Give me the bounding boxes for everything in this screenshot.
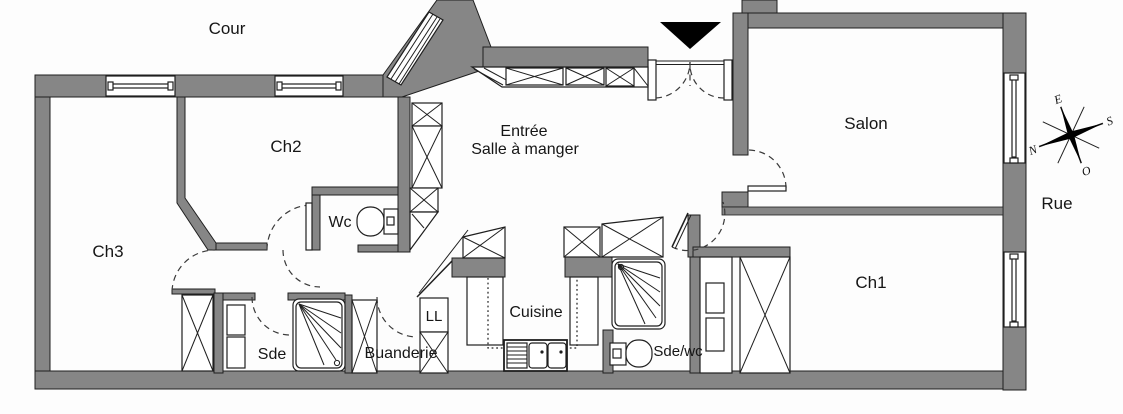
counter-left (467, 277, 503, 345)
door-arc-sde (252, 297, 290, 335)
sink-basin (548, 343, 566, 368)
window-ch2 (275, 76, 343, 96)
compass-label-o: O (1080, 163, 1093, 179)
wall-right (1003, 13, 1026, 390)
window-glass (1012, 79, 1016, 157)
entrance-arrow-icon (660, 22, 721, 49)
wall-ch3-ch2-divider (177, 97, 216, 250)
label-ch1: Ch1 (855, 273, 886, 292)
window-cap (1010, 254, 1018, 259)
compass-label-s: S (1104, 113, 1114, 128)
window-glass (112, 84, 169, 88)
wall-salon-step (722, 192, 748, 207)
label-buanderie: Buanderie (365, 345, 438, 362)
wardrobe-buanderie (352, 300, 377, 373)
faucet-dot (559, 350, 562, 353)
wardrobe-ch3 (182, 295, 213, 371)
label-sde-wc: Sde/wc (653, 343, 703, 360)
shower-sdewc (612, 259, 665, 329)
door-swing-arc (690, 62, 724, 98)
closet-entree-top (472, 67, 648, 87)
label-cuisine: Cuisine (509, 304, 562, 321)
wall-hall-north (216, 243, 267, 250)
window-cap (168, 82, 173, 90)
label-ch3: Ch3 (92, 242, 123, 261)
wall-top-ch3-ch2 (35, 75, 400, 97)
window-ch3 (106, 76, 175, 96)
wall-left (35, 75, 50, 389)
window-salon (1004, 73, 1025, 163)
door-leaf-left (648, 60, 656, 100)
floor-plan-page: E S N O Cour Ch2 Ch3 Wc Entrée Salle à m… (0, 0, 1123, 414)
entrance-door (648, 22, 732, 100)
window-glass (1012, 258, 1016, 321)
label-ch2: Ch2 (270, 137, 301, 156)
cabinet-shelf (706, 318, 724, 351)
compass-label-e: E (1051, 91, 1064, 107)
door-swing-arc (656, 62, 690, 98)
kitchen-sink (504, 340, 567, 371)
toilet-sdewc (610, 340, 652, 367)
toilet-bowl (357, 207, 384, 236)
wardrobe-ch1 (740, 257, 790, 373)
wall-ch2-right-column (398, 97, 410, 252)
cabinet-body (700, 257, 732, 373)
window-cap (1010, 158, 1018, 163)
wall-bottom (35, 371, 1026, 389)
cabinet-shelf (706, 283, 724, 313)
label-salle-a-manger: Salle à manger (471, 141, 579, 158)
closet-column-ch2 (410, 103, 442, 250)
wall-top-entree (483, 47, 648, 67)
label-salon: Salon (844, 114, 887, 133)
door-leaf-ch2 (306, 203, 312, 250)
kitchen-counters (467, 277, 598, 371)
cabinet-ch1 (700, 257, 732, 373)
label-entree: Entrée (500, 123, 547, 140)
wall-cuisine-left-band (452, 258, 505, 277)
floor-plan: E S N O Cour Ch2 Ch3 Wc Entrée Salle à m… (0, 0, 1123, 414)
faucet-dot (540, 350, 543, 353)
door-arc-wc (283, 250, 320, 287)
wall-salon-left (733, 13, 748, 155)
label-ll: LL (426, 308, 443, 325)
window-cap (1010, 75, 1018, 80)
cabinet-shelf (227, 337, 245, 368)
door-arc-buanderie (377, 297, 417, 337)
window-cap (108, 82, 113, 90)
closet-corner (410, 212, 438, 250)
wall-chimney-bump (742, 0, 777, 13)
closet-cuisine-left (463, 227, 505, 258)
door-leaf-right (724, 60, 732, 100)
toilet-wc (357, 207, 398, 236)
wall-sde-buanderie (345, 295, 352, 373)
window-cap (336, 82, 341, 90)
label-cour: Cour (209, 19, 246, 38)
door-arc-ch2 (267, 205, 312, 250)
door-arc-ch3 (172, 250, 215, 291)
closet-cuisine-right (564, 217, 663, 257)
wall-wc-top (312, 187, 407, 195)
door-leaf-salon (748, 186, 786, 191)
wall-diagonal-buanderie-a (417, 261, 452, 297)
sink-basin (529, 343, 547, 368)
compass-label-n: N (1026, 142, 1040, 159)
label-sde: Sde (258, 346, 287, 363)
window-cap (277, 82, 282, 90)
door-leaf-ch3 (172, 289, 215, 294)
counter-right (570, 277, 598, 345)
cabinet-shelf (227, 305, 245, 335)
wall-ch1-closet-band (693, 247, 790, 257)
toilet-bowl (626, 340, 652, 367)
door-leaf-ch1 (672, 213, 688, 247)
toilet-tank-detail (387, 217, 394, 225)
compass-rose: E S N O (1012, 78, 1123, 194)
door-arc-salon (748, 150, 786, 188)
window-cap (1010, 322, 1018, 327)
window-glass (281, 84, 337, 88)
toilet-tank-detail (613, 349, 621, 358)
wall-top-salon (733, 13, 1003, 28)
cabinet-sde (227, 305, 245, 368)
wall-wc-left (312, 195, 320, 250)
wall-sde-left (214, 293, 223, 373)
label-wc: Wc (328, 214, 351, 231)
wall-cuisine-right-band (565, 257, 612, 277)
label-rue: Rue (1041, 194, 1072, 213)
window-ch1 (1004, 252, 1025, 327)
wall-salon-ch1-divider (722, 207, 1003, 215)
shower-sde (293, 299, 345, 371)
